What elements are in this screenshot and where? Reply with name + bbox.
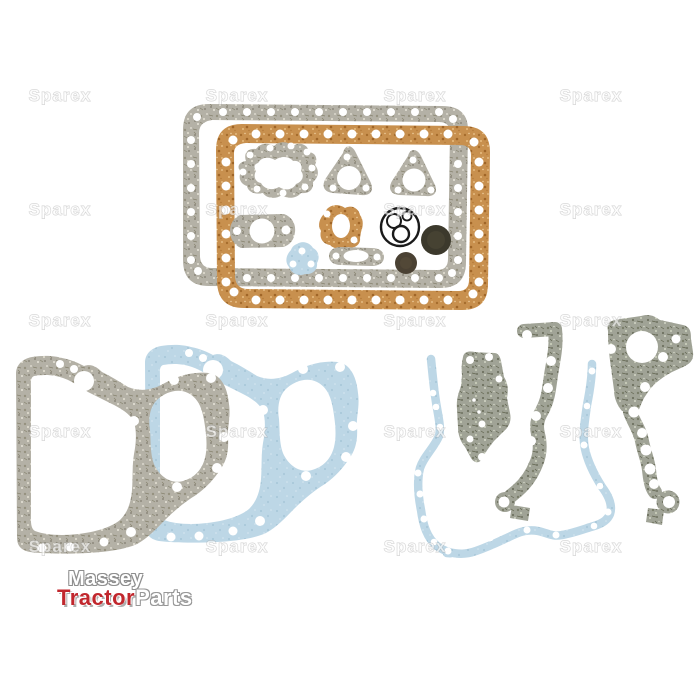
water-pump-gasket [239,142,318,198]
crank-seal-large [421,225,451,255]
sparex-watermark: Sparex [384,86,447,105]
sparex-watermark: Sparex [206,311,269,330]
sparex-watermark: Sparex [29,422,92,441]
sparex-watermark: Sparex [384,200,447,219]
sparex-watermark: Sparex [560,422,623,441]
sparex-watermark: Sparex [29,200,92,219]
brand-word-tractor: Tractor [57,585,135,610]
crank-opening [626,331,658,363]
brand-word-parts: Parts [135,585,193,610]
sparex-watermark: Sparex [384,537,447,556]
sparex-watermark: Sparex [206,200,269,219]
sparex-watermark: Sparex [560,200,623,219]
sparex-watermark: Sparex [384,311,447,330]
sparex-watermark: Sparex [384,422,447,441]
sparex-watermark: Sparex [560,86,623,105]
sparex-watermark: Sparex [206,422,269,441]
oval-manifold-gasket [329,247,384,266]
sparex-watermark: Sparex [29,537,92,556]
sparex-watermark: Sparex [560,311,623,330]
thermostat-gasket [230,214,295,248]
sparex-watermark: Sparex [29,86,92,105]
fuel-pump-gasket-cork [319,205,363,249]
sparex-watermark: Sparex [560,537,623,556]
product-photo: Sparex Sparex Sparex Sparex Sparex Spare… [0,0,700,700]
sparex-watermark: Sparex [206,86,269,105]
crank-seal-small [395,252,417,274]
sparex-watermark: Sparex [206,537,269,556]
sparex-watermark: Sparex [29,311,92,330]
brand-logo: Massey TractorParts [57,569,193,609]
